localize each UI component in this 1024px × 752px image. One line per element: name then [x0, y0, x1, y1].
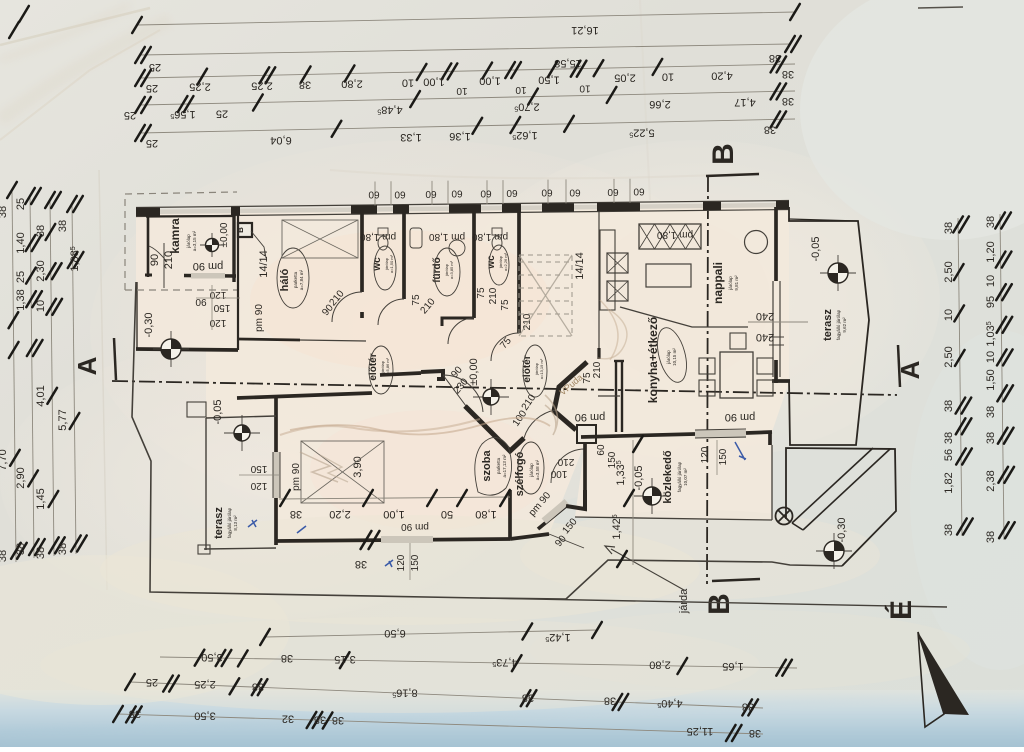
svg-text:3,50: 3,50 [201, 651, 222, 663]
svg-text:É: É [884, 600, 918, 620]
svg-text:38: 38 [281, 652, 293, 664]
svg-text:a=3,15 m²: a=3,15 m² [192, 230, 197, 251]
svg-text:60: 60 [480, 187, 492, 198]
svg-text:38: 38 [604, 695, 616, 707]
svg-text:2,38: 2,38 [985, 470, 997, 491]
svg-text:60: 60 [569, 186, 581, 197]
svg-text:10: 10 [985, 275, 997, 287]
svg-text:120: 120 [700, 446, 711, 463]
svg-text:6,50: 6,50 [384, 627, 405, 639]
svg-text:wc: wc [486, 255, 497, 270]
svg-text:25: 25 [216, 107, 228, 119]
svg-text:150: 150 [718, 448, 729, 465]
svg-text:38: 38 [742, 700, 754, 712]
svg-text:5,77: 5,77 [57, 409, 69, 430]
svg-text:38: 38 [985, 406, 997, 418]
svg-text:járólap: járólap [666, 350, 671, 365]
svg-text:parketta: parketta [496, 457, 501, 474]
svg-text:1,00: 1,00 [479, 75, 500, 87]
svg-text:38: 38 [252, 680, 264, 692]
svg-text:210: 210 [522, 313, 533, 330]
svg-text:2,50: 2,50 [943, 261, 955, 282]
svg-text:kamra: kamra [168, 218, 182, 254]
svg-text:4,01: 4,01 [35, 385, 47, 406]
svg-text:10: 10 [662, 71, 674, 83]
svg-text:38: 38 [943, 432, 955, 444]
svg-text:38: 38 [355, 558, 367, 570]
svg-text:38: 38 [943, 222, 955, 234]
svg-text:2,20: 2,20 [329, 508, 350, 520]
svg-text:1,50: 1,50 [538, 73, 559, 85]
svg-text:38: 38 [522, 691, 534, 703]
svg-text:10: 10 [35, 300, 47, 312]
svg-text:fagyálló járólap: fagyálló járólap [677, 461, 682, 492]
svg-text:4,20: 4,20 [711, 70, 732, 82]
svg-text:14/14: 14/14 [258, 250, 270, 278]
svg-text:10: 10 [985, 351, 997, 363]
svg-text:38: 38 [35, 225, 47, 237]
svg-text:100: 100 [550, 468, 567, 479]
svg-text:60: 60 [506, 187, 518, 198]
svg-text:38: 38 [985, 432, 997, 444]
svg-text:-0,05: -0,05 [810, 236, 822, 261]
svg-text:240: 240 [756, 310, 774, 322]
svg-text:járólap: járólap [529, 463, 534, 478]
svg-text:38: 38 [782, 95, 794, 107]
svg-text:90: 90 [149, 254, 161, 266]
svg-text:60: 60 [596, 444, 607, 456]
svg-text:pm 1,80: pm 1,80 [656, 229, 693, 240]
svg-text:38: 38 [0, 206, 9, 218]
svg-text:38: 38 [57, 543, 69, 555]
svg-text:1,45: 1,45 [35, 488, 47, 509]
svg-text:2,50: 2,50 [943, 346, 955, 367]
svg-text:7,70: 7,70 [0, 449, 9, 470]
svg-text:50: 50 [441, 508, 453, 520]
svg-text:pm 90: pm 90 [193, 260, 224, 272]
svg-text:60: 60 [541, 187, 553, 198]
svg-text:pm 90: pm 90 [401, 521, 429, 532]
svg-text:B: B [707, 143, 740, 165]
svg-text:pm 90: pm 90 [725, 411, 756, 423]
svg-text:150: 150 [213, 302, 230, 313]
svg-text:8,13 m²: 8,13 m² [233, 515, 238, 531]
svg-text:95: 95 [985, 296, 997, 308]
svg-text:±0,00: ±0,00 [219, 222, 230, 247]
svg-text:6,04: 6,04 [270, 134, 291, 146]
svg-text:25: 25 [146, 82, 158, 94]
svg-text:1,20: 1,20 [985, 241, 997, 262]
svg-text:pm 90: pm 90 [575, 411, 606, 423]
svg-text:120: 120 [396, 554, 407, 571]
svg-text:fagyálló járólap: fagyálló járólap [836, 309, 841, 340]
svg-text:60: 60 [633, 186, 645, 197]
svg-text:210: 210 [163, 251, 175, 269]
svg-text:38: 38 [749, 727, 761, 739]
svg-text:11,25: 11,25 [687, 725, 714, 737]
svg-text:25: 25 [124, 109, 136, 121]
svg-text:38: 38 [299, 78, 311, 90]
svg-text:2,25: 2,25 [194, 678, 215, 690]
svg-text:nappali: nappali [711, 262, 725, 304]
svg-text:3,15: 3,15 [334, 653, 355, 665]
svg-text:1,65: 1,65 [722, 660, 743, 672]
svg-text:a=3,58 m²: a=3,58 m² [535, 459, 540, 480]
svg-text:-0,30: -0,30 [836, 517, 848, 542]
svg-text:25: 25 [146, 676, 158, 688]
svg-text:a=13,19 m²: a=13,19 m² [539, 358, 544, 379]
svg-text:16,21: 16,21 [571, 24, 599, 36]
svg-text:terasz: terasz [213, 507, 225, 539]
svg-text:1,80: 1,80 [475, 508, 496, 520]
svg-text:10: 10 [579, 82, 591, 93]
svg-text:A: A [72, 356, 102, 375]
svg-text:38: 38 [290, 508, 302, 520]
svg-text:25: 25 [15, 198, 27, 210]
svg-text:2,05: 2,05 [614, 72, 635, 84]
svg-text:75: 75 [476, 287, 487, 299]
svg-text:-0,05: -0,05 [212, 399, 224, 424]
svg-text:38: 38 [985, 531, 997, 543]
svg-text:38: 38 [782, 68, 794, 80]
svg-text:a=7,84 m²: a=7,84 m² [299, 269, 304, 290]
svg-text:38: 38 [985, 216, 997, 228]
svg-text:2,30: 2,30 [35, 260, 47, 281]
svg-text:60: 60 [425, 188, 437, 199]
svg-text:38: 38 [764, 124, 776, 136]
svg-text:38: 38 [35, 547, 47, 559]
svg-text:-0,30: -0,30 [143, 312, 155, 337]
svg-text:2,66: 2,66 [649, 98, 670, 110]
svg-text:14/14: 14/14 [574, 252, 586, 280]
svg-text:járólap: járólap [186, 234, 191, 249]
svg-text:25: 25 [146, 137, 158, 149]
svg-text:210: 210 [592, 361, 603, 378]
svg-text:1,00: 1,00 [383, 508, 404, 520]
svg-text:1,00: 1,00 [423, 76, 444, 88]
svg-text:56: 56 [943, 449, 955, 461]
svg-text:szoba: szoba [481, 450, 493, 482]
svg-text:A: A [895, 360, 925, 379]
svg-text:38: 38 [332, 714, 344, 726]
svg-text:pm 90: pm 90 [291, 463, 302, 491]
svg-text:60: 60 [607, 186, 619, 197]
svg-text:75: 75 [500, 299, 511, 311]
svg-text:9,62 m²: 9,62 m² [842, 317, 847, 333]
svg-text:10: 10 [515, 84, 527, 95]
svg-text:75: 75 [411, 294, 422, 306]
svg-text:10,15 m²: 10,15 m² [672, 348, 677, 366]
svg-text:pm 90: pm 90 [254, 304, 265, 332]
svg-text:38: 38 [943, 400, 955, 412]
svg-text:1,33: 1,33 [400, 131, 421, 143]
svg-text:terasz: terasz [822, 309, 834, 341]
svg-text:1,40: 1,40 [15, 232, 27, 253]
svg-text:B: B [703, 593, 736, 615]
svg-text:10: 10 [402, 76, 414, 88]
svg-text:150: 150 [410, 554, 421, 571]
svg-text:1,82: 1,82 [943, 472, 955, 493]
svg-text:38: 38 [314, 713, 326, 725]
svg-text:150: 150 [607, 451, 618, 468]
svg-text:10: 10 [943, 309, 955, 321]
svg-text:fagyálló járólap: fagyálló járólap [227, 507, 232, 538]
svg-text:38: 38 [15, 543, 27, 555]
svg-text:1,36: 1,36 [449, 130, 470, 142]
svg-text:2,25: 2,25 [251, 79, 272, 91]
svg-text:-0,05: -0,05 [633, 465, 645, 490]
svg-text:9,81 m²: 9,81 m² [734, 275, 739, 291]
svg-text:járda: járda [678, 588, 690, 614]
svg-text:4,17: 4,17 [734, 96, 755, 108]
svg-text:3,90: 3,90 [352, 456, 364, 477]
svg-text:1,50: 1,50 [985, 369, 997, 390]
svg-text:háló: háló [279, 268, 291, 291]
svg-text:60: 60 [368, 188, 380, 199]
svg-text:konyha+étkező: konyha+étkező [646, 317, 660, 403]
svg-text:38: 38 [57, 220, 69, 232]
svg-text:210: 210 [557, 456, 574, 467]
svg-text:25: 25 [15, 271, 27, 283]
svg-text:120: 120 [250, 480, 267, 491]
svg-text:10: 10 [456, 85, 468, 96]
svg-text:10,07 m²: 10,07 m² [683, 468, 688, 486]
svg-text:parketta: parketta [293, 271, 298, 288]
svg-text:a=1,50 m²: a=1,50 m² [389, 254, 394, 273]
svg-text:210: 210 [488, 287, 499, 304]
svg-text:32: 32 [282, 712, 294, 724]
svg-text:2,80: 2,80 [341, 77, 362, 89]
svg-text:60: 60 [451, 188, 463, 199]
svg-text:járólap: járólap [728, 276, 733, 291]
svg-text:pm 1,80: pm 1,80 [471, 231, 508, 242]
svg-text:38: 38 [129, 708, 141, 720]
svg-text:a=3,85 m²: a=3,85 m² [449, 260, 454, 279]
svg-text:60: 60 [394, 188, 406, 199]
svg-text:1,38: 1,38 [15, 289, 27, 310]
svg-text:2,80: 2,80 [649, 659, 670, 671]
svg-text:a=17,13 m²: a=17,13 m² [502, 454, 507, 477]
svg-text:±0,00: ±0,00 [468, 358, 480, 385]
svg-text:38: 38 [0, 550, 9, 562]
svg-text:3,50: 3,50 [194, 710, 215, 722]
svg-text:150: 150 [250, 463, 267, 474]
svg-text:2,25: 2,25 [189, 81, 210, 93]
svg-text:2,90: 2,90 [15, 467, 27, 488]
svg-text:240: 240 [756, 331, 774, 343]
svg-text:38: 38 [943, 524, 955, 536]
